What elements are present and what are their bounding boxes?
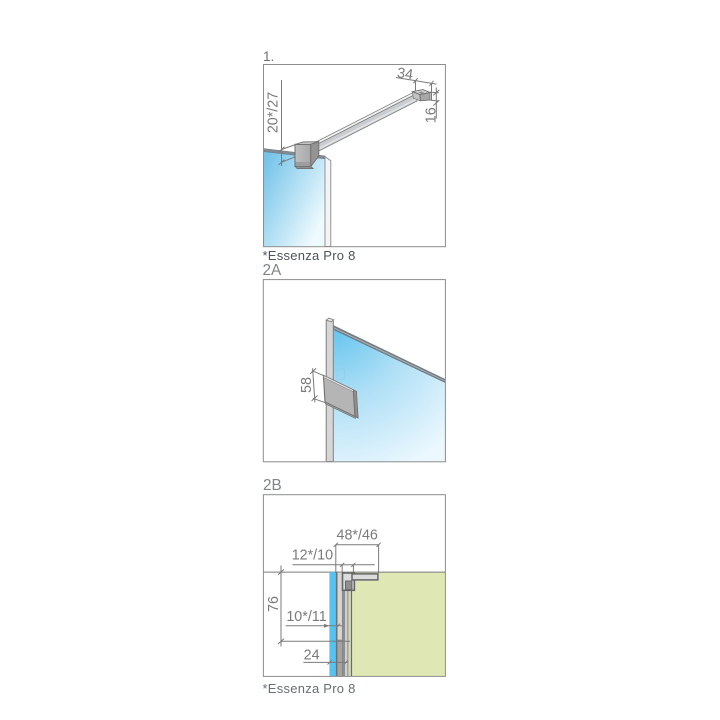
svg-text:24: 24 xyxy=(304,647,320,663)
svg-text:20*/27: 20*/27 xyxy=(265,92,281,133)
svg-text:10*/11: 10*/11 xyxy=(286,609,326,625)
svg-text:34: 34 xyxy=(396,65,414,83)
svg-text:58: 58 xyxy=(299,377,315,393)
svg-text:16: 16 xyxy=(424,107,440,123)
svg-text:48*/46: 48*/46 xyxy=(337,528,378,544)
svg-text:12*/10: 12*/10 xyxy=(292,548,333,564)
svg-text:76: 76 xyxy=(266,596,282,612)
